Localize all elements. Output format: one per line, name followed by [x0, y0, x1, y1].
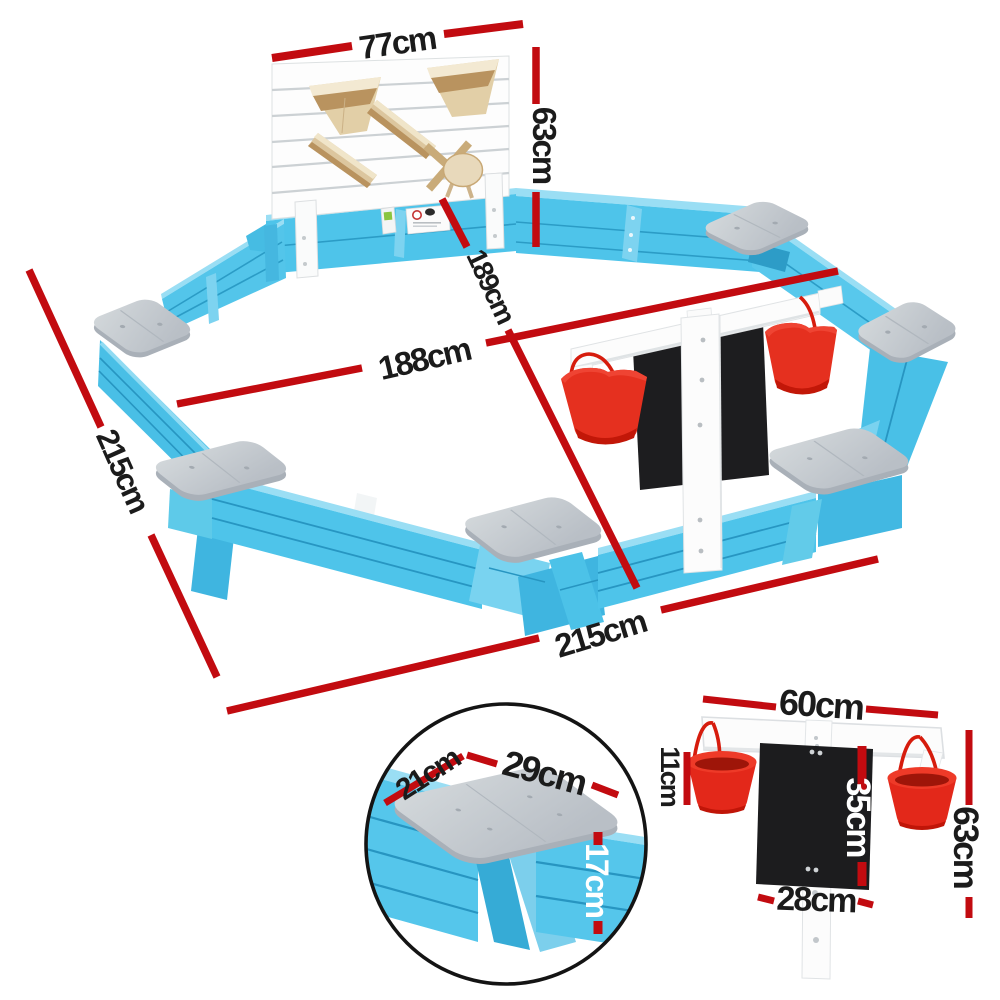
svg-text:17cm: 17cm — [579, 843, 615, 917]
svg-text:63cm: 63cm — [946, 806, 985, 888]
svg-text:35cm: 35cm — [839, 778, 877, 858]
svg-text:60cm: 60cm — [778, 681, 865, 728]
svg-text:28cm: 28cm — [776, 880, 857, 921]
svg-text:11cm: 11cm — [655, 746, 685, 807]
svg-text:63cm: 63cm — [526, 107, 563, 184]
